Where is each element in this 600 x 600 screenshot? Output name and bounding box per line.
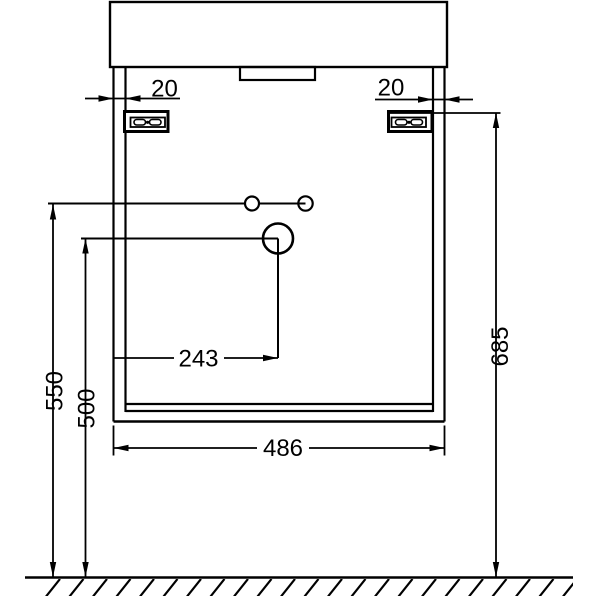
dimension-500: 500 [74, 239, 101, 578]
arrowhead-right-icon [263, 355, 278, 361]
dimension-550: 550 [42, 205, 69, 578]
dim-20-left-label: 20 [151, 76, 178, 103]
technical-drawing-canvas: 20 20 243 486 550 500 [0, 0, 600, 600]
washbasin-outline [110, 2, 447, 67]
arrowhead-down-icon [493, 562, 499, 577]
arrowhead-up-icon [82, 239, 88, 254]
arrowhead-up-icon [50, 205, 56, 220]
ground [25, 578, 573, 597]
dim-685-label: 685 [487, 326, 514, 366]
hinge-plate-left [125, 112, 169, 132]
hinge-screw-dot-icon [407, 121, 410, 124]
arrowhead-right-icon [418, 96, 433, 102]
arrowhead-up-icon [493, 113, 499, 128]
dim-486-label: 486 [263, 435, 303, 462]
arrowhead-left-icon [114, 445, 129, 451]
dim-243-label: 243 [178, 346, 218, 373]
arrowhead-down-icon [50, 562, 56, 577]
dim-20-right-label: 20 [378, 75, 405, 102]
basin-underside-recess [240, 67, 315, 80]
arrowhead-left-icon [126, 95, 141, 101]
dim-550-label: 550 [42, 371, 69, 411]
ground-hatch-pattern [40, 579, 573, 596]
arrowhead-left-icon [445, 96, 460, 102]
dim-500-label: 500 [74, 388, 101, 428]
arrowhead-down-icon [82, 562, 88, 577]
arrowhead-right-icon [99, 95, 114, 101]
hinge-screw-dot-icon [146, 121, 149, 124]
dimension-486: 486 [114, 426, 445, 463]
arrowhead-right-icon [430, 445, 445, 451]
dimension-685: 685 [389, 113, 515, 577]
basin-holes [48, 196, 313, 358]
vanity-front-elevation-drawing: 20 20 243 486 550 500 [0, 0, 600, 600]
tap-hole-left-circle [245, 197, 259, 211]
hinge-plate-right [389, 112, 433, 132]
dimension-20-right: 20 [375, 75, 473, 103]
dimension-20-left: 20 [85, 76, 180, 103]
dimension-243: 243 [114, 346, 279, 373]
